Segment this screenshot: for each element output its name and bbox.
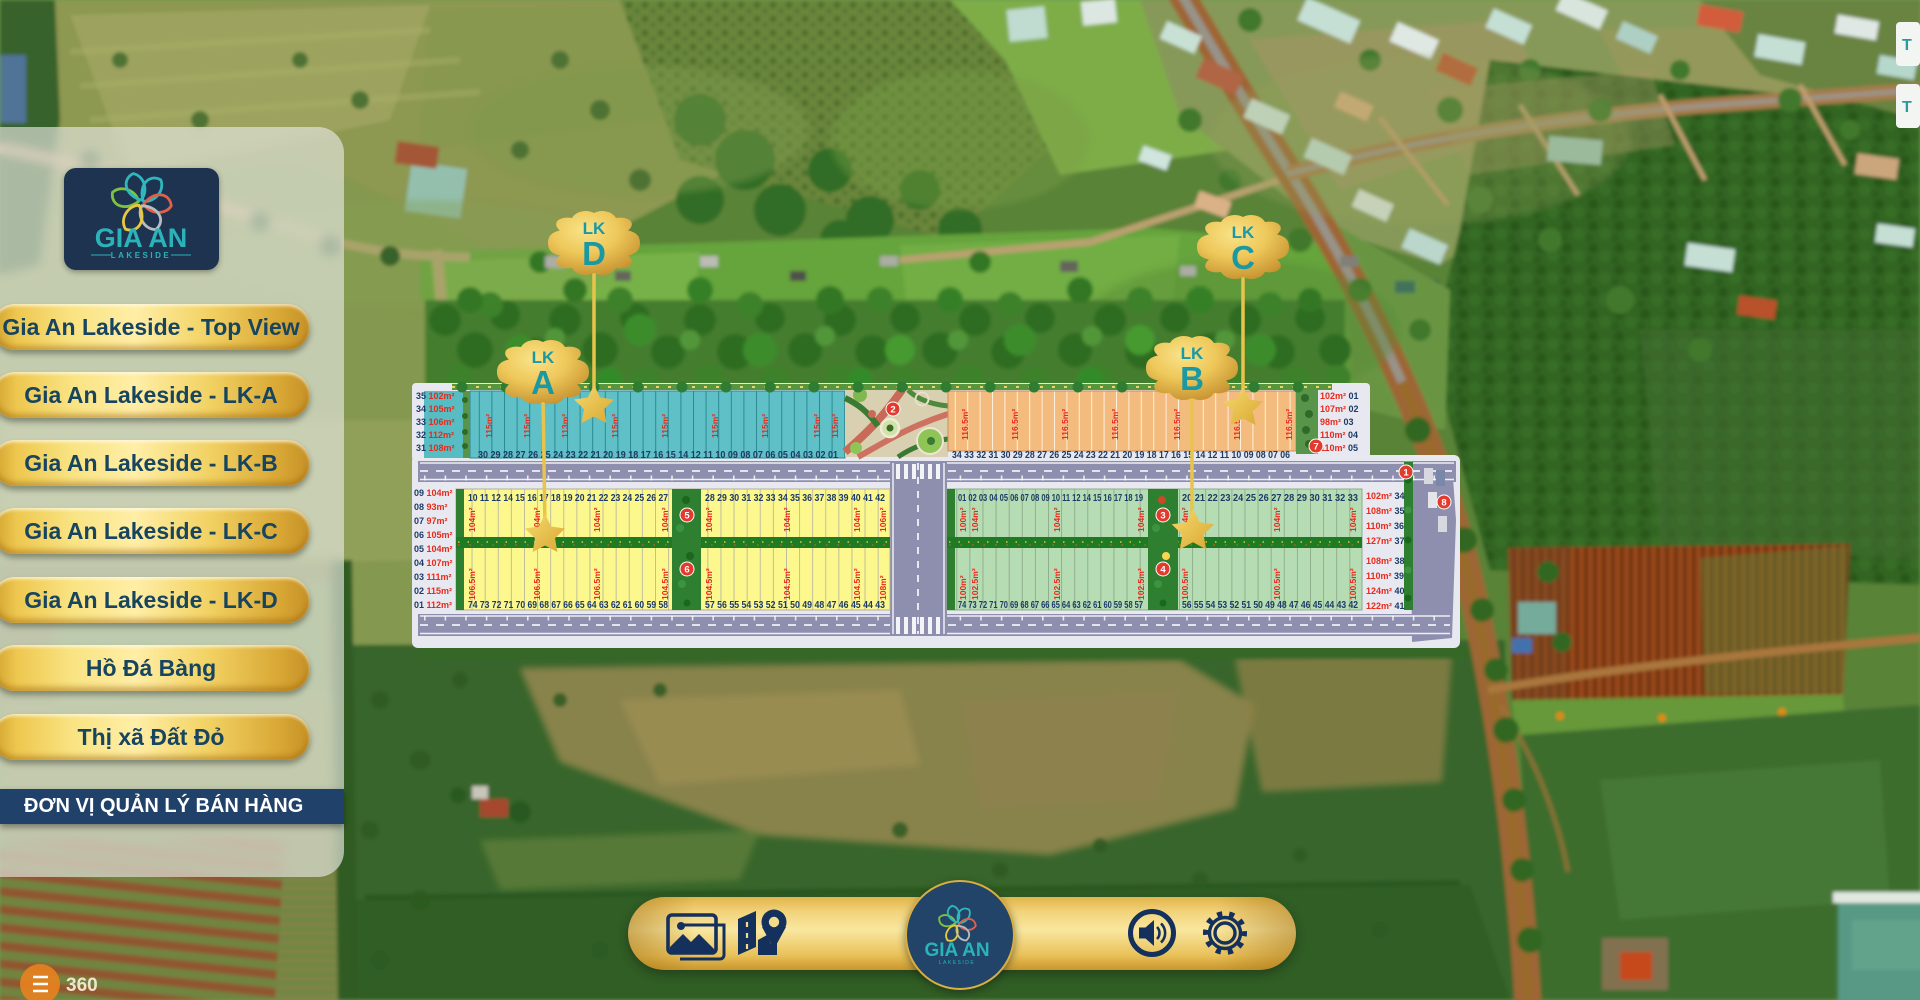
svg-text:100.5m²: 100.5m² [1180,568,1190,600]
svg-text:108m² 35: 108m² 35 [1366,506,1405,516]
svg-text:104.5m²: 104.5m² [852,568,862,600]
svg-text:110m² 04: 110m² 04 [1320,430,1358,440]
svg-text:04 107m²: 04 107m² [414,558,453,568]
svg-text:02 115m²: 02 115m² [414,586,452,596]
svg-text:8: 8 [1441,498,1446,509]
svg-text:115m²: 115m² [812,414,822,438]
svg-text:4: 4 [1160,565,1166,576]
svg-text:104m²: 104m² [1136,507,1146,532]
svg-text:115m²: 115m² [660,414,670,438]
svg-text:106.5m²: 106.5m² [592,568,602,600]
svg-text:31 108m²: 31 108m² [416,443,455,453]
svg-text:33 106m²: 33 106m² [416,417,455,427]
svg-text:LAKESIDE: LAKESIDE [111,251,171,260]
svg-text:01 112m²: 01 112m² [414,600,452,610]
svg-text:100.5m²: 100.5m² [1348,568,1358,600]
svg-text:T: T [1902,37,1912,54]
svg-text:74 73 72 71 70 69 68 67 66 65: 74 73 72 71 70 69 68 67 66 65 64 63 62 6… [958,600,1143,611]
svg-text:1: 1 [1403,468,1409,479]
svg-text:104m²: 104m² [1052,507,1062,532]
svg-text:110m² 39: 110m² 39 [1366,571,1404,581]
svg-text:3: 3 [1160,511,1165,522]
svg-text:5: 5 [684,511,690,522]
svg-text:2: 2 [890,405,895,416]
svg-text:108m² 38: 108m² 38 [1366,556,1405,566]
svg-text:107m² 02: 107m² 02 [1320,404,1359,414]
svg-text:C: C [1231,239,1255,276]
svg-text:100m²: 100m² [958,507,968,532]
svg-text:32 112m²: 32 112m² [416,430,454,440]
svg-text:116.5m²: 116.5m² [1172,409,1182,440]
svg-text:56 55 54 53 52 51 50 49 48 47: 56 55 54 53 52 51 50 49 48 47 46 45 44 4… [1182,600,1358,611]
svg-text:108m²: 108m² [878,575,888,600]
svg-text:07 97m²: 07 97m² [414,516,448,526]
svg-text:34 105m²: 34 105m² [416,404,455,414]
svg-text:102.5m²: 102.5m² [1052,568,1062,600]
svg-text:34 33 32 31 30 29 28 27 26 25: 34 33 32 31 30 29 28 27 26 25 24 23 22 2… [952,450,1290,461]
svg-text:127m² 37: 127m² 37 [1366,536,1405,546]
svg-text:20 21 22 23 24 25 26 27 28 29: 20 21 22 23 24 25 26 27 28 29 30 31 32 3… [1182,493,1358,504]
svg-text:08 93m²: 08 93m² [414,502,448,512]
svg-text:35 102m²: 35 102m² [416,391,455,401]
svg-text:28 29 30 31 32 33 34 35 36 37: 28 29 30 31 32 33 34 35 36 37 38 39 40 4… [705,493,885,504]
svg-text:113m²: 113m² [560,414,570,438]
svg-text:05 104m²: 05 104m² [414,544,453,554]
svg-text:102m² 01: 102m² 01 [1320,391,1359,401]
svg-text:116.5m²: 116.5m² [1060,409,1070,440]
svg-text:7: 7 [1313,442,1318,453]
svg-text:115m²: 115m² [484,414,494,438]
svg-text:T: T [1902,99,1912,116]
svg-text:74 73 72 71 70 69 68 67 66 65: 74 73 72 71 70 69 68 67 66 65 64 63 62 6… [468,600,668,611]
svg-text:102.5m²: 102.5m² [970,568,980,600]
svg-text:104m²: 104m² [660,507,670,532]
svg-text:104m²: 104m² [970,507,980,532]
svg-text:104.5m²: 104.5m² [782,568,792,600]
svg-text:GIA AN: GIA AN [924,940,989,961]
svg-text:116.5m²: 116.5m² [1284,409,1294,440]
svg-text:104m²: 104m² [782,507,792,532]
svg-text:115m²: 115m² [830,414,840,438]
svg-text:116.5m²: 116.5m² [1010,409,1020,440]
svg-text:106.5m²: 106.5m² [532,568,542,600]
svg-text:104m²: 104m² [852,507,862,532]
svg-text:98m² 03: 98m² 03 [1320,417,1354,427]
svg-text:06 105m²: 06 105m² [414,530,453,540]
svg-text:104m²: 104m² [704,507,714,532]
svg-text:01 02 03 04 05 06 07 08 09 10: 01 02 03 04 05 06 07 08 09 10 11 12 14 1… [958,493,1143,504]
svg-text:GIA AN: GIA AN [95,223,188,253]
svg-text:104m²: 104m² [1348,507,1358,532]
svg-text:115m²: 115m² [522,414,532,438]
svg-text:102.5m²: 102.5m² [1136,568,1146,600]
svg-text:110m² 05: 110m² 05 [1320,443,1358,453]
svg-text:104m²: 104m² [1272,507,1282,532]
svg-text:122m² 41: 122m² 41 [1366,601,1405,611]
svg-text:57 56 55 54 53 52 51 50 49 48: 57 56 55 54 53 52 51 50 49 48 47 46 45 4… [705,600,885,611]
svg-text:A: A [531,364,555,401]
svg-text:106.5m²: 106.5m² [467,568,477,600]
svg-text:110m² 36: 110m² 36 [1366,521,1404,531]
svg-text:30 29 28 27 26 25 24 23 22 21: 30 29 28 27 26 25 24 23 22 21 20 19 18 1… [478,450,838,461]
svg-text:D: D [582,235,606,272]
svg-text:03 111m²: 03 111m² [414,572,452,582]
svg-text:106m²: 106m² [878,507,888,532]
svg-text:09 104m²: 09 104m² [414,488,453,498]
svg-text:100.5m²: 100.5m² [1272,568,1282,600]
svg-text:100m²: 100m² [958,575,968,600]
svg-text:102m² 34: 102m² 34 [1366,491,1405,501]
svg-text:104.5m²: 104.5m² [704,568,714,600]
svg-text:B: B [1180,360,1204,397]
svg-text:104m²: 104m² [467,507,477,532]
svg-text:360: 360 [66,975,98,996]
svg-text:124m² 40: 124m² 40 [1366,586,1405,596]
svg-text:104.5m²: 104.5m² [660,568,670,600]
svg-text:104m²: 104m² [592,507,602,532]
svg-text:115m²: 115m² [760,414,770,438]
svg-text:115m²: 115m² [610,414,620,438]
svg-text:6: 6 [684,565,689,576]
svg-text:LAKESIDE: LAKESIDE [939,960,975,966]
svg-text:116.5m²: 116.5m² [960,409,970,440]
svg-text:116.5m²: 116.5m² [1110,409,1120,440]
svg-text:115m²: 115m² [710,414,720,438]
svg-text:10 11 12 14 15 16 17 18 19 20: 10 11 12 14 15 16 17 18 19 20 21 22 23 2… [468,493,668,504]
